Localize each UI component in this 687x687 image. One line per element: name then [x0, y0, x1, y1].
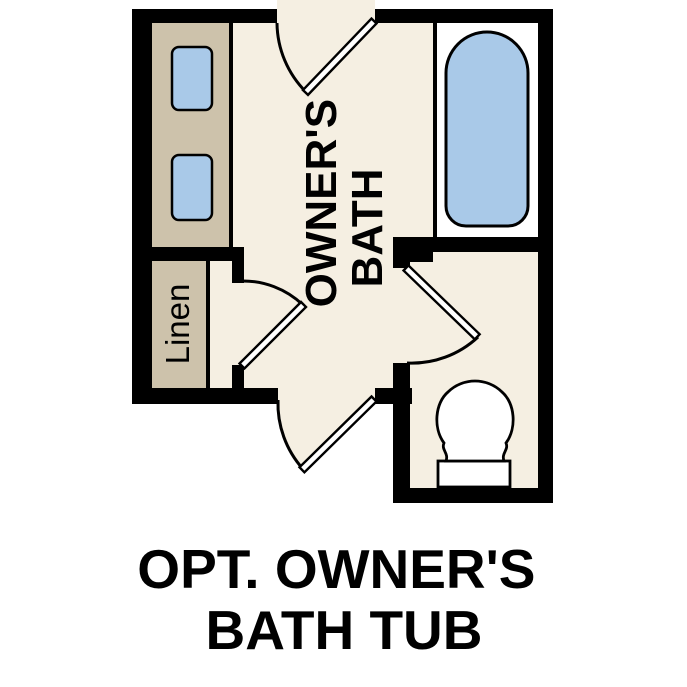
wall-left — [132, 9, 152, 404]
plan-caption-line1: OPT. OWNER'S — [137, 538, 535, 600]
wall-toilet-room-left-lower — [393, 363, 410, 503]
wall-toilet-room-left-upper — [393, 237, 410, 268]
plan-caption: OPT. OWNER'S BATH TUB — [137, 538, 550, 661]
wall-toilet-room-bottom — [393, 488, 553, 503]
floorplan-page: OWNER'S BATH Linen OPT. OWNER'S BATH TUB — [0, 0, 687, 687]
wall-linen-door-lower-stub — [232, 365, 244, 390]
wall-linen-door-upper-stub — [232, 247, 244, 283]
linen-closet-label: Linen — [159, 284, 196, 365]
wall-bottom-left — [132, 388, 278, 404]
plan-caption-line2: BATH TUB — [206, 599, 483, 661]
owners-bath-label-line1: OWNER'S — [297, 99, 346, 307]
toilet-bowl — [437, 381, 513, 461]
wall-top-left — [132, 9, 277, 23]
toilet-tank — [438, 461, 510, 487]
linen-shelf-edge-line — [206, 260, 210, 388]
floor-plan: OWNER'S BATH Linen OPT. OWNER'S BATH TUB — [0, 0, 687, 687]
vanity-counter-edge-line — [229, 23, 233, 247]
wall-top-right — [375, 9, 553, 23]
owners-bath-label-line2: BATH — [343, 169, 392, 288]
vanity-sink-top — [172, 47, 212, 110]
bathtub — [446, 32, 528, 226]
vanity-sink-bottom — [172, 155, 212, 220]
entry-doorway-floor — [277, 0, 375, 25]
wall-vanity-linen-divider — [132, 247, 244, 261]
tub-alcove-divider-line — [433, 23, 437, 237]
wall-right — [538, 9, 553, 503]
